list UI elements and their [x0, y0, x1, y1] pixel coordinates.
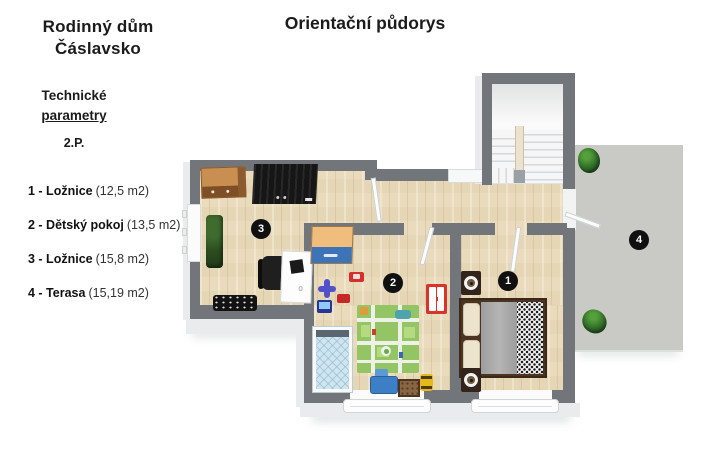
- rug: [213, 295, 257, 311]
- dresser: [200, 166, 246, 199]
- mat-building: [360, 307, 368, 315]
- wall-face: [475, 76, 482, 184]
- project-title-line1: Rodinný dům: [8, 16, 188, 38]
- floor-label: 2.P.: [8, 136, 140, 150]
- mat-pond: [395, 310, 411, 319]
- kids-table: [370, 376, 398, 394]
- stair-flight-left: [492, 132, 516, 168]
- wardrobe-handle: [283, 196, 286, 199]
- wall: [432, 223, 451, 235]
- bunk-bed: [310, 226, 353, 264]
- room-marker-3: 3: [251, 219, 271, 239]
- wardrobe-door: [437, 287, 444, 311]
- bedside-lamp-icon: [464, 373, 478, 387]
- toy-tv: [317, 300, 332, 313]
- duvet: [481, 302, 517, 374]
- toy-airplane: [324, 279, 330, 298]
- wardrobe-dark: [252, 164, 318, 204]
- bush-icon: [578, 148, 600, 173]
- window-sill-line: [350, 406, 424, 407]
- legend-item-3: 3 - Ložnice(15,8 m2): [28, 252, 198, 266]
- project-title: Rodinný dům Čáslavsko: [8, 16, 188, 60]
- stair-newel: [514, 170, 525, 183]
- project-title-line2: Čáslavsko: [8, 38, 188, 60]
- room-marker-1: 1: [498, 271, 518, 291]
- wall-face: [186, 319, 308, 334]
- plant-icon: [206, 215, 223, 268]
- wardrobe-label: [305, 198, 312, 201]
- wall: [482, 73, 492, 185]
- wall: [372, 169, 450, 181]
- duvet-pattern: [517, 302, 543, 374]
- room-marker-4: 4: [629, 230, 649, 250]
- legend-item-2: 2 - Dětský pokoj(13,5 m2): [28, 218, 198, 232]
- play-mat: [357, 305, 419, 373]
- mat-roundabout-center: [384, 349, 389, 354]
- toy-car-red: [349, 272, 364, 282]
- room-legend: 1 - Ložnice(12,5 m2) 2 - Dětský pokoj(13…: [28, 184, 198, 320]
- room-marker-2: 2: [383, 273, 403, 293]
- wall: [482, 73, 575, 84]
- toddler-bed-headboard: [316, 330, 349, 337]
- window-sill-tab: [182, 246, 187, 254]
- desk: [280, 250, 313, 303]
- wall: [563, 73, 575, 193]
- double-bed: [459, 298, 547, 378]
- laptop: [290, 259, 305, 274]
- mat-road: [357, 341, 419, 345]
- toy-car-yellow: [420, 374, 433, 391]
- mat-road: [357, 318, 419, 322]
- mat-toy-car: [372, 329, 376, 335]
- bedside-lamp-icon: [464, 276, 478, 290]
- toy-car-stripe: [421, 376, 432, 379]
- mat-toy-car: [399, 352, 403, 358]
- page-title: Orientační půdorys: [240, 13, 490, 34]
- window-sill-line: [478, 406, 552, 407]
- mouse: [299, 286, 303, 291]
- floorplan-page: Rodinný dům Čáslavsko Technické parametr…: [0, 0, 702, 468]
- legend-item-1: 1 - Ložnice(12,5 m2): [28, 184, 198, 198]
- blanket-graphic: [324, 254, 338, 257]
- toy-chest: [398, 379, 420, 397]
- technical-params-line1: Technické: [8, 86, 140, 106]
- wall-face: [296, 319, 304, 407]
- toy-car-stripe: [421, 386, 432, 389]
- mat-park: [361, 325, 370, 337]
- wall-white-segment: [448, 169, 484, 183]
- mat-park: [404, 327, 415, 338]
- wall: [527, 223, 567, 235]
- window-room3: [187, 204, 201, 262]
- dresser-side: [237, 167, 245, 196]
- window-sill: [343, 399, 431, 413]
- window-sill-tab: [182, 210, 187, 218]
- stair-winder-steps: [492, 168, 516, 183]
- staircase: [492, 84, 563, 184]
- technical-params-line2: parametry: [8, 106, 140, 126]
- wardrobe-handle: [276, 196, 279, 199]
- pillow: [463, 303, 480, 336]
- legend-item-4: 4 - Terasa(15,19 m2): [28, 286, 198, 300]
- mat-roundabout: [381, 346, 391, 356]
- toy-tv-screen: [319, 302, 330, 309]
- stair-divider-rail: [515, 126, 524, 171]
- mat-road: [357, 360, 419, 363]
- window-sill: [471, 399, 559, 413]
- wardrobe-handle: [436, 297, 438, 301]
- dresser-handle: [211, 190, 214, 193]
- dresser-handle: [226, 190, 229, 193]
- toy-car-window: [353, 274, 360, 279]
- toddler-bed: [313, 327, 352, 392]
- window-sill-tab: [182, 228, 187, 236]
- kids-wardrobe-red: [426, 284, 447, 314]
- wall: [563, 228, 575, 403]
- toy-car-small: [337, 294, 350, 303]
- technical-params-heading: Technické parametry: [8, 86, 140, 126]
- stair-flight-right: [524, 128, 563, 183]
- stair-landing: [492, 84, 563, 130]
